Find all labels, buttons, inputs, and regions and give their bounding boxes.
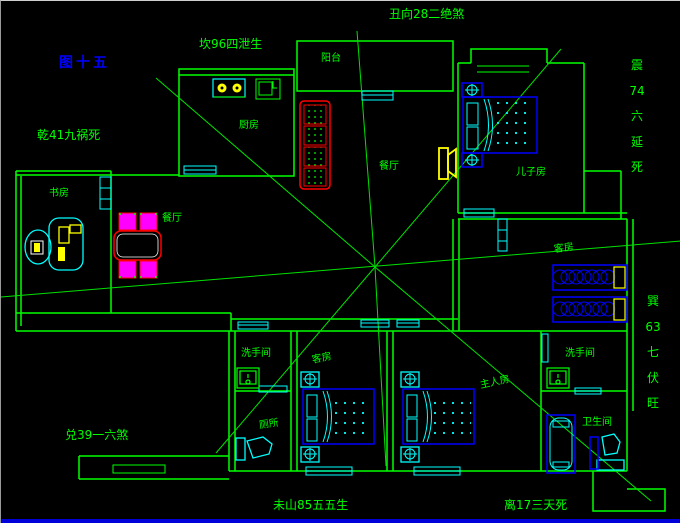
annotation-kan: 坎96四泄生	[199, 38, 262, 51]
annotation-zhen-char: 74	[629, 85, 644, 98]
annotation-xun-char: 七	[647, 346, 659, 359]
room-label-kitchen: 厨房	[239, 121, 259, 132]
room-label-washroom-right: 洗手间	[565, 349, 595, 360]
annotation-wei: 未山85五五生	[273, 499, 348, 512]
annotation-zhen-char: 六	[631, 110, 643, 123]
window	[397, 320, 419, 327]
bed-icon	[462, 83, 537, 167]
sink-icon	[547, 368, 569, 388]
figure-number-label: 图十五	[59, 56, 110, 71]
room-label-balcony: 阳台	[321, 54, 341, 65]
annotation-xun-char: 巽	[647, 295, 659, 308]
annotation-li: 离17三天死	[504, 499, 567, 512]
window	[575, 388, 601, 394]
twin-beds-icon	[553, 265, 627, 322]
window	[362, 91, 393, 100]
window	[361, 320, 389, 327]
bed-icon	[401, 372, 474, 462]
room-label-washroom-left: 洗手间	[241, 349, 271, 360]
window	[184, 166, 216, 174]
room-label-dining: 餐厅	[162, 214, 182, 225]
window	[464, 209, 494, 217]
sofa-icon	[300, 101, 330, 189]
toilet-icon	[590, 434, 624, 470]
stove-icon	[213, 79, 245, 97]
annotation-xun-char: 伏	[647, 372, 659, 385]
annotation-dui: 兑39一六煞	[65, 429, 128, 442]
floorplan-drawing	[1, 1, 680, 523]
sink-icon	[237, 368, 259, 388]
toilet-icon	[236, 437, 272, 460]
annotation-chou: 丑向28二绝煞	[389, 8, 464, 21]
tv-icon	[439, 148, 456, 179]
annotation-xun-char: 63	[645, 321, 660, 334]
annotation-zhen-char: 震	[631, 59, 643, 72]
room-label-study: 书房	[49, 189, 69, 200]
cad-canvas[interactable]: 图十五 坎96四泄生 丑向28二绝煞 乾41九祸死 兑39一六煞 未山85五五生…	[0, 0, 680, 523]
window	[238, 322, 268, 329]
room-label-living: 餐厅	[379, 162, 399, 173]
annotation-zhen-char: 延	[631, 136, 643, 149]
annotation-xun: 巽 63 七 伏 旺	[641, 295, 665, 410]
room-label-bathroom: 卫生间	[582, 418, 612, 429]
dining-table-icon	[114, 213, 161, 278]
room-label-son-room: 儿子房	[516, 168, 546, 179]
annotation-zhen-char: 死	[631, 161, 643, 174]
kitchen-sink-icon	[256, 79, 280, 99]
annotation-qian: 乾41九祸死	[37, 129, 100, 142]
bed-icon	[301, 372, 374, 462]
bathtub-icon	[547, 415, 575, 473]
door-leaf	[100, 177, 111, 209]
door-leaf	[498, 219, 507, 251]
window	[414, 467, 460, 475]
annotation-zhen: 震 74 六 延 死	[625, 59, 649, 174]
annotation-xun-char: 旺	[647, 397, 659, 410]
window-bottom-edge	[1, 519, 680, 523]
desk-icon	[25, 218, 83, 270]
window	[306, 467, 352, 475]
door-leaf	[542, 334, 548, 362]
